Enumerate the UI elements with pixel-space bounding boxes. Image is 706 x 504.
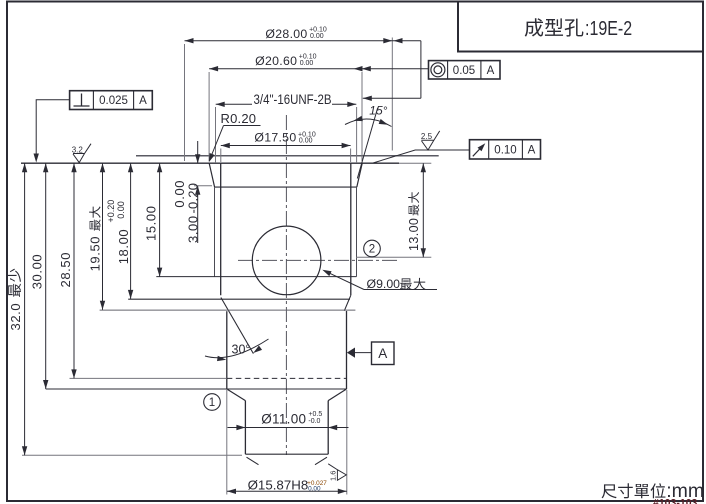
svg-text:0.025: 0.025 [99,95,128,107]
svg-text:3.00: 3.00 [185,215,200,243]
svg-text:A: A [487,65,495,77]
svg-text:R0.20: R0.20 [221,111,257,126]
svg-text:Ø17.50: Ø17.50 [254,130,296,144]
svg-text:Ø9.00: Ø9.00 [367,277,401,291]
svg-text:0.05: 0.05 [453,65,475,77]
svg-text:Ø11.00: Ø11.00 [261,412,306,427]
svg-text:3/4"-16UNF-2B: 3/4"-16UNF-2B [254,92,332,107]
svg-text:15.00: 15.00 [143,205,158,241]
svg-text:30.00: 30.00 [30,254,45,290]
svg-text:A: A [139,95,147,107]
svg-text:15°: 15° [369,104,387,118]
svg-text:+0.20: +0.20 [106,200,116,223]
svg-text::19E-2: :19E-2 [585,16,632,39]
svg-text:Ø15.87H8: Ø15.87H8 [248,478,309,493]
svg-text:0.00: 0.00 [172,180,187,208]
svg-text:Ø28.00: Ø28.00 [265,27,307,41]
svg-text:A: A [528,144,536,156]
svg-text:0.00: 0.00 [116,201,126,219]
svg-text:19.50: 19.50 [88,236,103,272]
svg-text:2.5: 2.5 [421,132,433,141]
svg-text:28.50: 28.50 [58,252,73,288]
svg-text:30°: 30° [232,343,251,357]
svg-text:13.00: 13.00 [407,218,421,251]
svg-text:0.00: 0.00 [310,33,324,40]
svg-text:3.2: 3.2 [72,146,84,155]
svg-text:A: A [378,346,387,361]
svg-text:2: 2 [369,244,375,256]
svg-text:1: 1 [209,397,215,409]
svg-text:Ø20.60: Ø20.60 [255,54,297,68]
svg-text:0.00: 0.00 [308,486,321,493]
svg-text:#103-103: #103-103 [653,497,698,504]
svg-text:18.00: 18.00 [116,229,131,265]
svg-text:32.0: 32.0 [8,303,23,331]
svg-text:0.00: 0.00 [300,60,314,67]
svg-text:0.00: 0.00 [299,137,313,144]
svg-text:+0.5: +0.5 [308,411,322,418]
svg-text:-0.0: -0.0 [308,418,320,425]
svg-text:1.6: 1.6 [328,471,337,481]
svg-text:0.10: 0.10 [494,144,516,156]
svg-text:-0.20: -0.20 [185,183,200,214]
